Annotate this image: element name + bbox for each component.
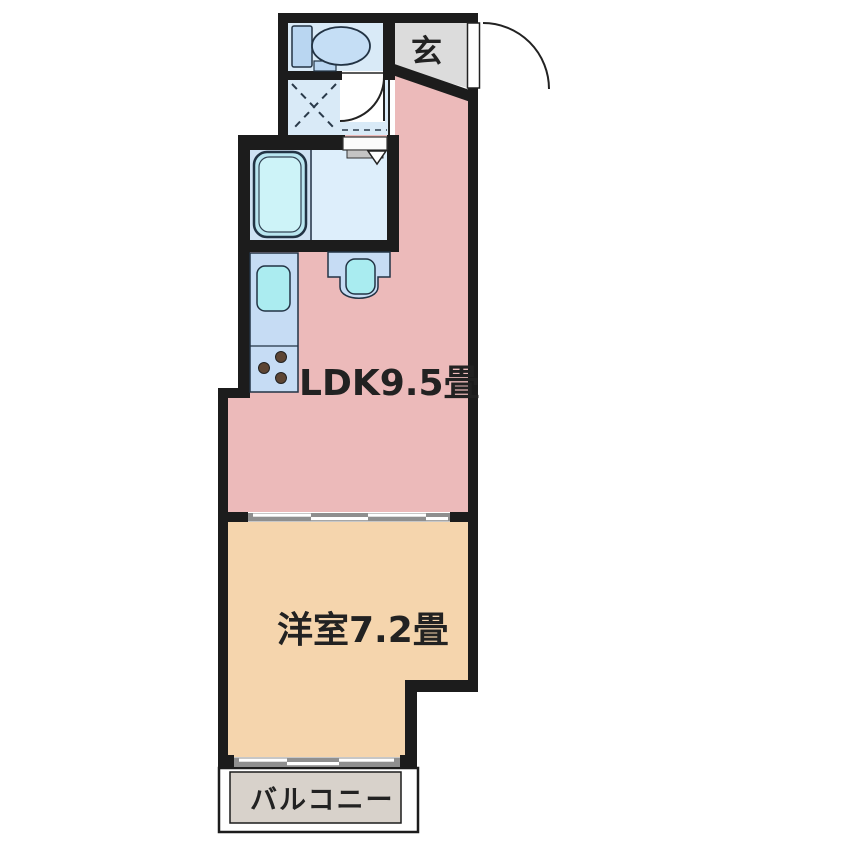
balcony-label: バルコニー xyxy=(250,778,394,817)
entrance-door xyxy=(468,23,550,89)
wall-segment xyxy=(468,522,478,692)
balcony-window xyxy=(234,758,400,767)
kitchen-sink xyxy=(257,266,290,311)
wall-segment xyxy=(238,135,345,150)
genkan-label: 玄 xyxy=(411,26,443,71)
floor-plan-drawing xyxy=(0,0,846,846)
wall-segment xyxy=(218,388,228,768)
wall-segment xyxy=(218,755,234,768)
wall-segment xyxy=(218,512,248,522)
wall-segment xyxy=(400,755,417,768)
wall-segment xyxy=(278,13,478,23)
wall-segment xyxy=(387,135,399,252)
wall-segment xyxy=(278,71,342,80)
wall-segment xyxy=(468,86,478,522)
wall-segment xyxy=(405,680,478,692)
kitchen-unit xyxy=(250,253,298,392)
floor-plan: 玄 LDK9.5畳 洋室7.2畳 バルコニー xyxy=(0,0,846,846)
sliding-partition xyxy=(248,513,450,522)
wall-segment xyxy=(238,135,250,398)
bathtub xyxy=(254,152,306,237)
wall-segment xyxy=(238,240,399,252)
western-room-label: 洋室7.2畳 xyxy=(277,601,449,653)
wall-segment xyxy=(450,512,478,522)
ldk-label: LDK9.5畳 xyxy=(299,354,480,406)
